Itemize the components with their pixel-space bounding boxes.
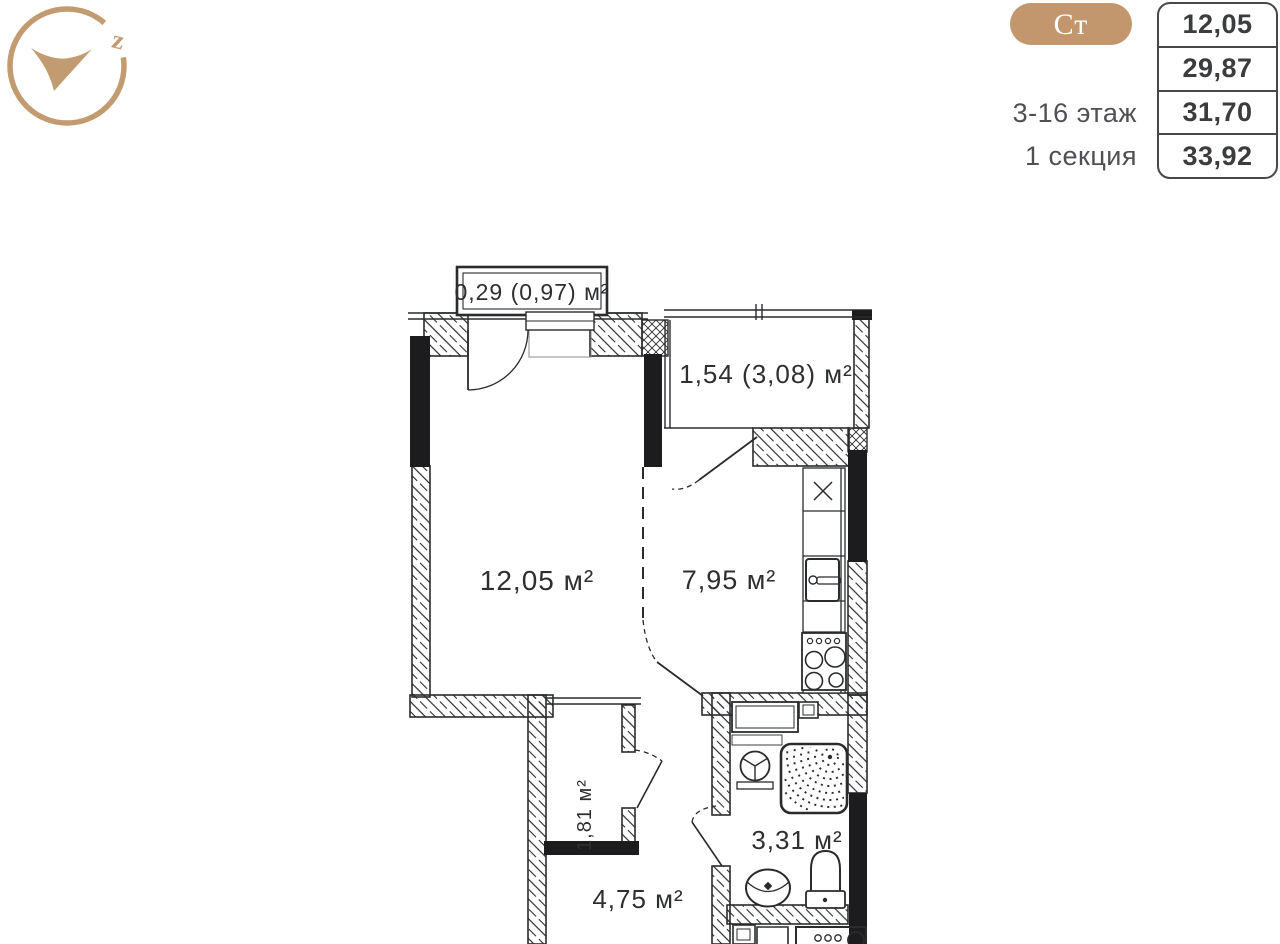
room-label-kitchen: 7,95 м² bbox=[682, 565, 777, 595]
toilet-icon bbox=[806, 851, 845, 908]
room-label-bathroom: 3,31 м² bbox=[751, 825, 842, 855]
room-label-wardrobe: 1,81 м² bbox=[574, 779, 596, 851]
room-label-balcony: 0,29 (0,97) м² bbox=[454, 279, 609, 305]
room-label-living: 12,05 м² bbox=[480, 565, 594, 596]
washbasin-icon bbox=[746, 870, 790, 907]
room-label-hallway: 4,75 м² bbox=[592, 884, 683, 914]
page: z Ст 3-16 этаж 1 секция 12,05 29,87 31,7… bbox=[0, 0, 1280, 944]
washer-icon bbox=[737, 752, 773, 790]
lower-room-fixtures bbox=[733, 925, 866, 944]
room-label-loggia: 1,54 (3,08) м² bbox=[679, 359, 853, 389]
stove-icon bbox=[802, 633, 846, 690]
window bbox=[526, 312, 594, 357]
floor-plan: 0,29 (0,97) м² 1,54 (3,08) м² 12,05 м² 7… bbox=[0, 0, 1280, 944]
loggia-door-swing bbox=[672, 437, 757, 489]
kitchen-sink-icon bbox=[806, 559, 840, 601]
bathroom-counter bbox=[732, 702, 818, 745]
balcony-door-swing bbox=[468, 330, 528, 390]
wardrobe-door-swing bbox=[635, 750, 662, 808]
